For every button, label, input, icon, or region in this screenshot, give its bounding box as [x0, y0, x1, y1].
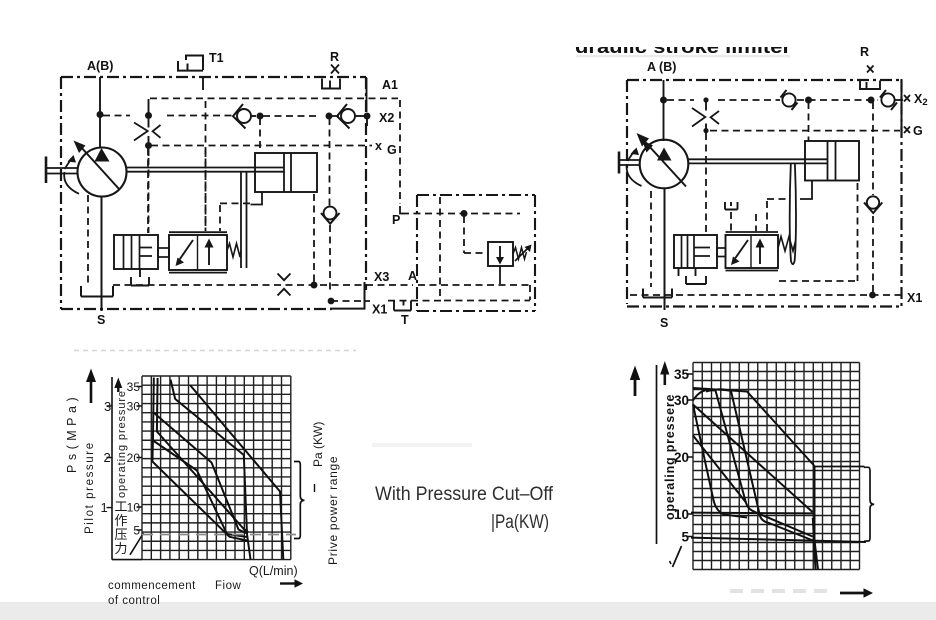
svg-text:P: P	[392, 213, 400, 227]
svg-text:10: 10	[127, 501, 141, 515]
svg-text:3: 3	[104, 399, 111, 414]
svg-text:A1: A1	[382, 78, 398, 92]
svg-text:R: R	[860, 45, 869, 59]
svg-text:X2: X2	[379, 111, 394, 125]
svg-text:A(B): A(B)	[87, 59, 113, 73]
svg-text:Q(L/min): Q(L/min)	[249, 564, 298, 578]
svg-text:S: S	[97, 313, 105, 327]
svg-text:Prive power range: Prive power range	[326, 456, 340, 565]
svg-text:A (B): A (B)	[647, 60, 676, 74]
svg-text:Pa (KW): Pa (KW)	[311, 422, 325, 467]
svg-text:x: x	[375, 139, 382, 153]
svg-text:作: 作	[115, 513, 128, 528]
svg-text:A: A	[408, 269, 417, 283]
svg-text:With Pressure Cut–Off: With Pressure Cut–Off	[375, 484, 554, 505]
svg-text:X1: X1	[907, 291, 922, 305]
svg-text:T: T	[401, 313, 409, 327]
svg-text:35: 35	[674, 367, 690, 382]
svg-text:G: G	[387, 143, 397, 157]
svg-text:35: 35	[127, 380, 141, 394]
svg-text:Fiow: Fiow	[215, 580, 241, 592]
svg-text:1: 1	[101, 500, 108, 515]
svg-text:20: 20	[127, 451, 141, 465]
svg-text:压: 压	[115, 527, 128, 542]
svg-text:30: 30	[127, 400, 141, 414]
svg-text:Ps(MPa): Ps(MPa)	[65, 393, 79, 473]
svg-text:commencement: commencement	[108, 580, 196, 592]
svg-text:T1: T1	[209, 51, 224, 65]
svg-text:operating pressure: operating pressure	[116, 390, 128, 498]
svg-text:R: R	[330, 50, 339, 64]
svg-text:力: 力	[115, 541, 128, 556]
svg-text:operaling pressere: operaling pressere	[663, 394, 677, 520]
svg-text:Pilot pressure: Pilot pressure	[84, 441, 96, 534]
svg-text:|Pa(KW): |Pa(KW)	[491, 512, 549, 533]
svg-text:G: G	[913, 124, 923, 138]
svg-text:of control: of control	[108, 595, 160, 607]
svg-text:工: 工	[115, 499, 128, 514]
svg-text:5: 5	[133, 524, 140, 538]
svg-text:S: S	[660, 316, 668, 330]
svg-text:2: 2	[104, 450, 111, 465]
svg-text:5: 5	[681, 530, 689, 545]
svg-text:X3: X3	[374, 270, 389, 284]
svg-text:X1: X1	[372, 303, 387, 317]
